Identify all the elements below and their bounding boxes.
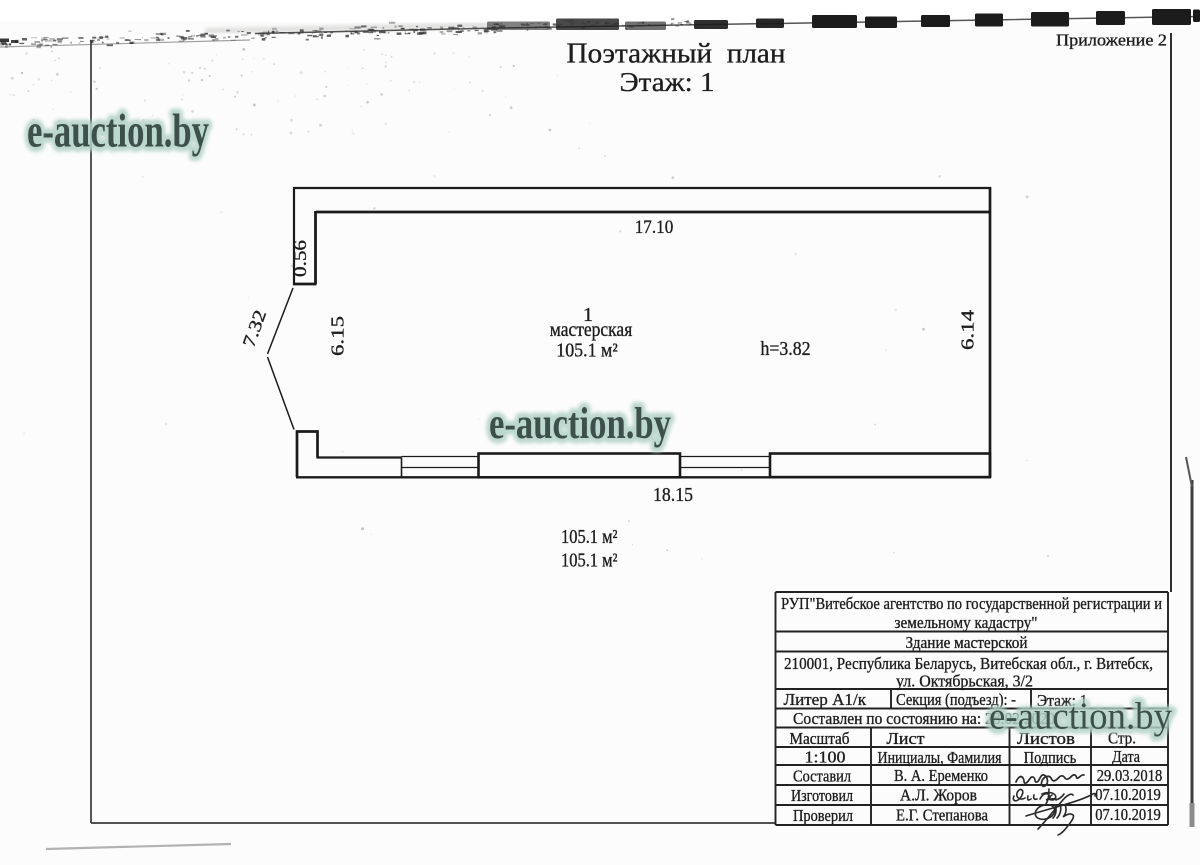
svg-text:Подпись: Подпись (1024, 748, 1077, 767)
svg-text:Инициалы, Фамилия: Инициалы, Фамилия (878, 748, 1002, 767)
svg-text:6.14: 6.14 (958, 310, 978, 350)
svg-text:6.15: 6.15 (328, 316, 348, 356)
svg-text:А.Л. Жоров: А.Л. Жоров (900, 786, 977, 805)
svg-text:17.10: 17.10 (635, 217, 674, 238)
svg-text:e-auction.by: e-auction.by (989, 696, 1173, 738)
svg-text:Здание мастерской: Здание мастерской (906, 633, 1028, 652)
svg-text:Изготовил: Изготовил (791, 786, 853, 805)
svg-text:В. А. Еременко: В. А. Еременко (894, 766, 988, 785)
svg-text:105.1 м²: 105.1 м² (561, 526, 618, 548)
svg-text:210001, Республика Беларусь, В: 210001, Республика Беларусь, Витебская о… (784, 654, 1153, 673)
svg-text:Составил: Составил (793, 767, 851, 786)
svg-text:ул. Октябрьская, 3/2: ул. Октябрьская, 3/2 (896, 672, 1033, 691)
svg-text:Лист: Лист (887, 729, 925, 748)
svg-text:e-auction.by: e-auction.by (27, 105, 209, 158)
svg-text:1:100: 1:100 (805, 748, 846, 767)
svg-text:Литер А1/к: Литер А1/к (784, 690, 868, 709)
svg-text:Приложение 2: Приложение 2 (1056, 31, 1167, 50)
svg-text:Проверил: Проверил (793, 806, 853, 825)
svg-text:Е.Г. Степанова: Е.Г. Степанова (896, 806, 989, 825)
svg-text:18.15: 18.15 (653, 485, 693, 506)
svg-text:h=3.82: h=3.82 (761, 339, 811, 360)
svg-text:105.1 м²: 105.1 м² (556, 341, 618, 362)
svg-text:земельному кадастру": земельному кадастру" (895, 613, 1038, 632)
svg-text:Масштаб: Масштаб (790, 729, 850, 748)
svg-text:Дата: Дата (1112, 747, 1141, 766)
svg-text:07.10.2019: 07.10.2019 (1095, 785, 1161, 804)
svg-text:Этаж: 1: Этаж: 1 (620, 67, 715, 97)
svg-text:0.56: 0.56 (290, 240, 310, 277)
svg-text:29.03.2018: 29.03.2018 (1097, 766, 1163, 785)
svg-text:РУП"Витебское агентство по гос: РУП"Витебское агентство по государственн… (781, 594, 1162, 613)
svg-text:07.10.2019: 07.10.2019 (1095, 805, 1161, 824)
svg-text:105.1 м²: 105.1 м² (561, 550, 618, 572)
svg-text:Поэтажный план: Поэтажный план (567, 39, 786, 70)
svg-text:мастерская: мастерская (550, 320, 633, 341)
svg-text:e-auction.by: e-auction.by (489, 399, 671, 448)
